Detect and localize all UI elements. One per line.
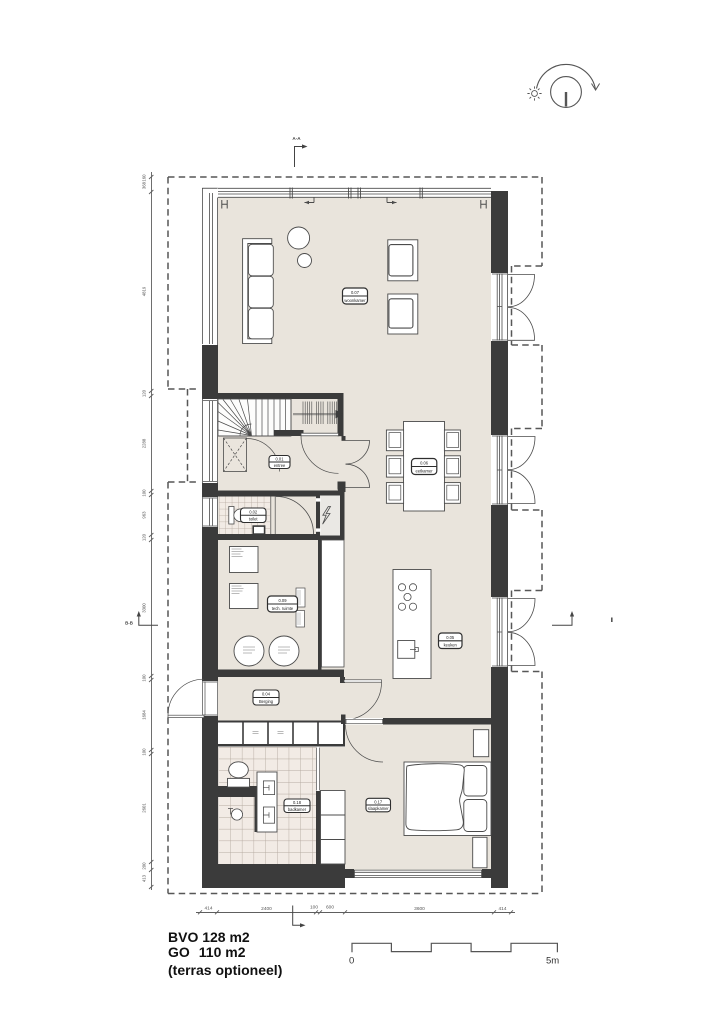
svg-text:tech. ruimte: tech. ruimte bbox=[272, 606, 294, 611]
svg-text:0.07: 0.07 bbox=[351, 290, 360, 295]
svg-text:368: 368 bbox=[142, 181, 147, 189]
svg-text:160: 160 bbox=[142, 174, 147, 182]
svg-text:413: 413 bbox=[142, 874, 147, 882]
svg-text:5m: 5m bbox=[546, 956, 559, 967]
svg-text:0.02: 0.02 bbox=[249, 510, 258, 515]
svg-text:0.18: 0.18 bbox=[293, 800, 302, 805]
svg-text:badkamer: badkamer bbox=[288, 807, 307, 812]
svg-text:120: 120 bbox=[142, 533, 147, 541]
svg-text:0.05: 0.05 bbox=[446, 635, 455, 640]
svg-text:0.06: 0.06 bbox=[420, 461, 429, 466]
svg-text:2288: 2288 bbox=[142, 438, 147, 448]
svg-text:slaapkamer: slaapkamer bbox=[368, 806, 390, 811]
svg-text:3300: 3300 bbox=[142, 603, 147, 613]
svg-text:keuken: keuken bbox=[444, 642, 458, 647]
svg-text:0.04: 0.04 bbox=[262, 692, 271, 697]
svg-text:120: 120 bbox=[142, 389, 147, 397]
svg-text:GO: GO bbox=[168, 944, 190, 960]
svg-text:963: 963 bbox=[142, 511, 147, 519]
svg-text:110 m2: 110 m2 bbox=[199, 944, 246, 960]
svg-text:eetkamer: eetkamer bbox=[416, 468, 434, 473]
svg-text:200: 200 bbox=[142, 862, 147, 870]
svg-text:600: 600 bbox=[326, 905, 334, 911]
svg-text:4819: 4819 bbox=[142, 286, 147, 296]
svg-text:woonkamer: woonkamer bbox=[344, 298, 366, 303]
svg-text:100: 100 bbox=[310, 905, 318, 911]
svg-text:100: 100 bbox=[142, 674, 147, 682]
svg-text:100: 100 bbox=[142, 748, 147, 756]
svg-text:414: 414 bbox=[204, 906, 212, 912]
svg-text:0.17: 0.17 bbox=[374, 800, 383, 805]
svg-text:0.09: 0.09 bbox=[279, 598, 288, 603]
svg-text:BVO 128 m2: BVO 128 m2 bbox=[168, 929, 250, 945]
svg-text:2400: 2400 bbox=[261, 906, 272, 912]
svg-text:3600: 3600 bbox=[414, 906, 425, 912]
svg-text:0: 0 bbox=[349, 956, 354, 967]
svg-text:414: 414 bbox=[498, 906, 506, 912]
svg-text:1684: 1684 bbox=[142, 710, 147, 720]
svg-text:(terras optioneel): (terras optioneel) bbox=[168, 962, 282, 978]
svg-text:100: 100 bbox=[142, 489, 147, 497]
svg-text:A-A: A-A bbox=[292, 136, 301, 141]
svg-text:entree: entree bbox=[274, 463, 286, 468]
svg-text:Berging: Berging bbox=[259, 699, 274, 704]
svg-text:toilet: toilet bbox=[249, 517, 259, 522]
svg-text:0.01: 0.01 bbox=[276, 457, 285, 462]
svg-text:2601: 2601 bbox=[142, 803, 147, 813]
svg-text:B-B: B-B bbox=[125, 621, 133, 626]
